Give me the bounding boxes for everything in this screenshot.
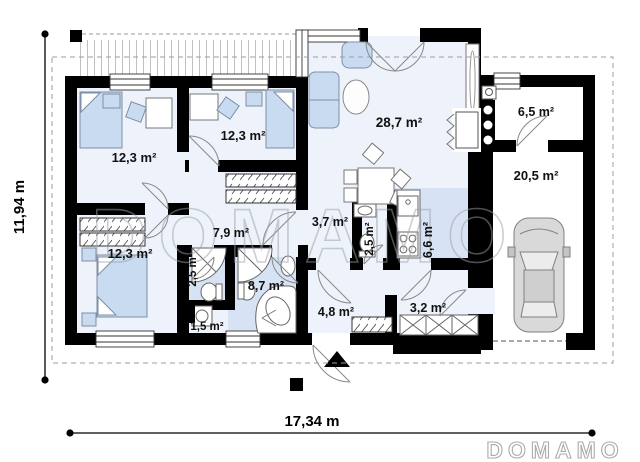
label-wc: 1,5 m² — [190, 321, 223, 333]
label-hall: 3,7 m² — [312, 215, 348, 229]
dimension-width: 17,34 m — [66, 413, 595, 437]
label-toilet: 2,5 m² — [364, 222, 376, 255]
floor-plan-page: DOMAMO DOMAMO 12,3 m² 12,3 m² 28,7 m² 6,… — [0, 0, 640, 462]
window-boiler-room — [494, 73, 520, 89]
fireplace — [447, 108, 481, 152]
desk-1 — [146, 98, 172, 128]
closet-vestibule — [400, 315, 478, 335]
boiler — [481, 86, 496, 150]
floor-plan-svg: DOMAMO DOMAMO 12,3 m² 12,3 m² 28,7 m² 6,… — [0, 0, 640, 462]
label-living-room: 28,7 m² — [376, 115, 423, 130]
coffee-table — [343, 80, 369, 114]
label-bathroom: 8,7 m² — [248, 279, 284, 293]
toilet-1 — [201, 283, 217, 301]
label-bedroom-bottom-left: 12,3 m² — [108, 246, 153, 261]
dimension-height: 11,94 m — [11, 30, 49, 383]
label-boiler-room: 6,5 m² — [518, 105, 554, 119]
height-dimension-label: 11,94 m — [11, 180, 28, 234]
terrace-corner-marker — [70, 30, 82, 42]
window-bedroom-2 — [212, 74, 268, 90]
label-bedroom-top-left: 12,3 m² — [112, 150, 157, 165]
label-corridor: 7,9 m² — [213, 226, 249, 240]
entrance-arrow — [324, 351, 350, 367]
window-bedroom-1 — [110, 74, 150, 90]
terrace-deck — [70, 30, 300, 77]
label-entry: 4,8 m² — [318, 305, 354, 319]
window-bathroom — [226, 331, 260, 347]
armchair — [342, 42, 372, 68]
porch-post — [290, 378, 303, 391]
watermark-center: DOMAMO — [92, 194, 519, 279]
label-shower-room: 2,5 m² — [187, 253, 199, 286]
window-bedroom-3 — [96, 331, 154, 347]
watermark-corner: DOMAMO — [486, 437, 623, 462]
label-kitchen: 6,6 m² — [421, 222, 435, 258]
wardrobe-entry — [352, 317, 392, 332]
label-garage: 20,5 m² — [514, 168, 559, 183]
desk-2 — [190, 94, 218, 120]
label-bedroom-top-middle: 12,3 m² — [221, 128, 266, 143]
wardrobe-corridor — [226, 174, 296, 187]
width-dimension-label: 17,34 m — [284, 413, 339, 430]
label-vestibule: 3,2 m² — [410, 301, 446, 315]
